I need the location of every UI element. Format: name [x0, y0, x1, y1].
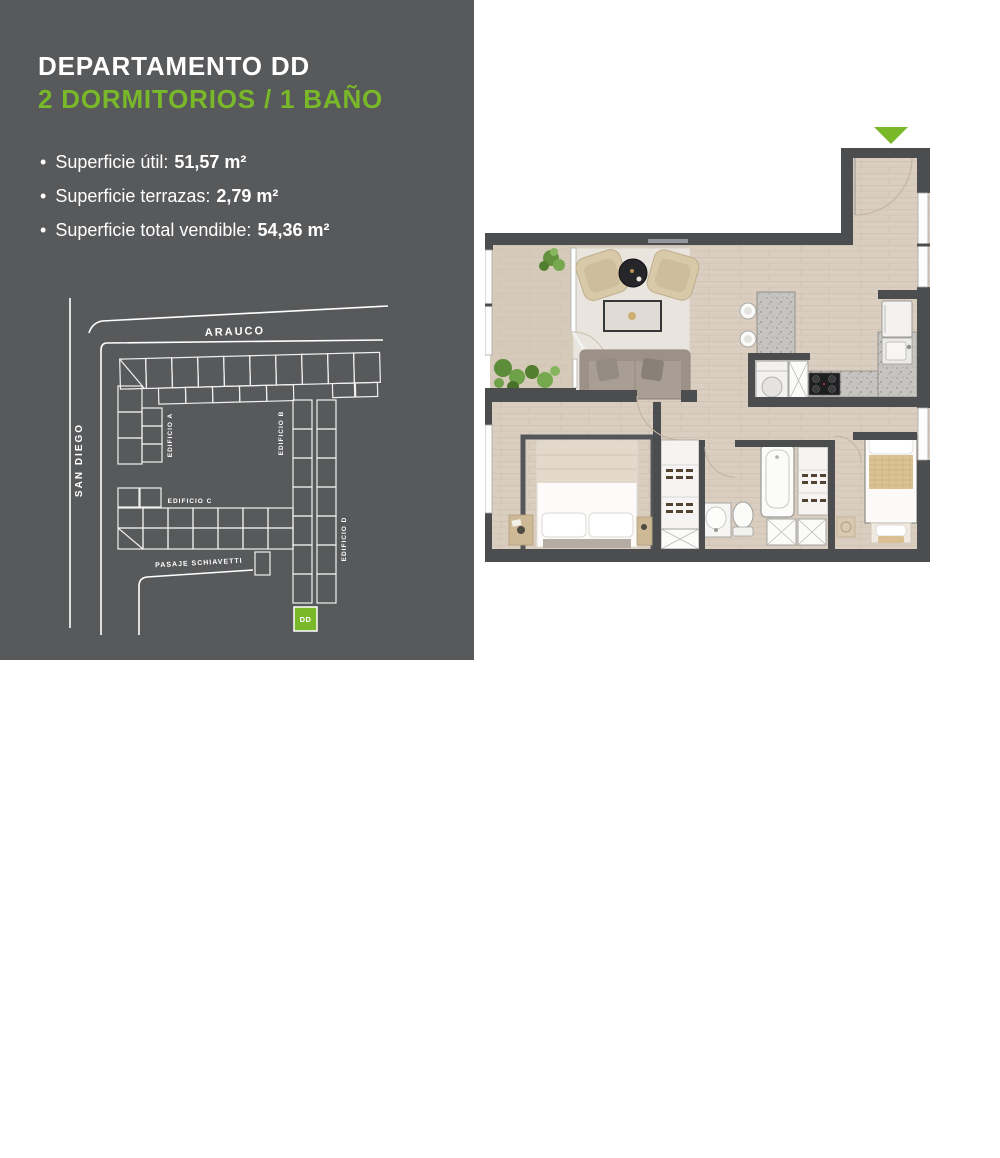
spec-item-total: •Superficie total vendible:54,36 m²	[40, 220, 329, 241]
bed-secondary	[865, 435, 917, 523]
spec-value: 51,57 m²	[174, 152, 246, 172]
bed-main	[523, 437, 653, 549]
brochure-page: DEPARTAMENTO DD 2 DORMITORIOS / 1 BAÑO •…	[0, 0, 1000, 1158]
unit-marker-label: DD	[300, 615, 312, 624]
building-label-d: EDIFICIO D	[341, 517, 348, 562]
bullet-icon: •	[40, 220, 46, 240]
street-line-pasaje	[139, 570, 253, 635]
closet-main	[661, 440, 699, 549]
floor-mat	[837, 517, 855, 537]
nightstand-left	[509, 515, 533, 545]
spec-list: •Superficie útil:51,57 m² •Superficie te…	[40, 152, 329, 254]
coffee-table	[619, 259, 647, 287]
spec-value: 2,79 m²	[216, 186, 278, 206]
closet-hall	[798, 447, 828, 515]
wall-vent	[648, 239, 688, 243]
window-entry-hall	[918, 193, 928, 287]
washer	[756, 361, 788, 400]
fridge	[882, 301, 912, 337]
kitchen-sink	[882, 338, 912, 364]
street-label-pasaje: PASAJE SCHIAVETTI	[155, 558, 243, 570]
toilet	[733, 502, 753, 536]
spec-label: Superficie útil:	[55, 152, 168, 172]
left-panel: DEPARTAMENTO DD 2 DORMITORIOS / 1 BAÑO •…	[0, 0, 474, 660]
bathroom-sink	[701, 503, 731, 537]
kitchen-cabinet-x	[789, 361, 808, 400]
tv-console	[604, 301, 661, 331]
site-map: ARAUCO SAN DIEGO PASAJE SCHIAVETTI EDIFI…	[40, 290, 460, 640]
bullet-icon: •	[40, 152, 46, 172]
cabinet-x-left	[767, 519, 796, 545]
spec-label: Superficie terrazas:	[55, 186, 210, 206]
unit-marker-dd: DD	[294, 607, 317, 631]
nightstand-right	[637, 517, 652, 545]
window-bedroom2	[918, 408, 928, 460]
cooktop	[809, 373, 840, 395]
spec-label: Superficie total vendible:	[55, 220, 251, 240]
building-label-a: EDIFICIO A	[167, 413, 174, 457]
window-terrace	[485, 250, 492, 355]
kitchen-island	[757, 292, 795, 355]
building-units-east-b	[293, 400, 312, 603]
apartment-title: DEPARTAMENTO DD	[38, 50, 383, 83]
window-bedroom-main	[485, 425, 492, 513]
entry-arrow-icon	[874, 127, 908, 144]
building-units-west	[118, 386, 162, 464]
bedroom2-bench	[871, 523, 911, 543]
apartment-subtitle: 2 DORMITORIOS / 1 BAÑO	[38, 83, 383, 116]
spec-item-util: •Superficie útil:51,57 m²	[40, 152, 329, 173]
building-label-b: EDIFICIO B	[278, 411, 285, 456]
cabinet-x-right	[798, 519, 826, 545]
street-lines	[70, 298, 388, 635]
street-label-san-diego: SAN DIEGO	[74, 423, 85, 497]
building-label-c: EDIFICIO C	[168, 498, 213, 505]
bathtub	[761, 445, 794, 517]
apartment-heading: DEPARTAMENTO DD 2 DORMITORIOS / 1 BAÑO	[38, 50, 383, 116]
floor-plan	[485, 125, 945, 565]
spec-item-terrazas: •Superficie terrazas:2,79 m²	[40, 186, 329, 207]
bullet-icon: •	[40, 186, 46, 206]
street-label-arauco: ARAUCO	[205, 325, 266, 339]
spec-value: 54,36 m²	[257, 220, 329, 240]
building-units-north	[120, 352, 381, 405]
building-units-east-d	[317, 400, 336, 603]
